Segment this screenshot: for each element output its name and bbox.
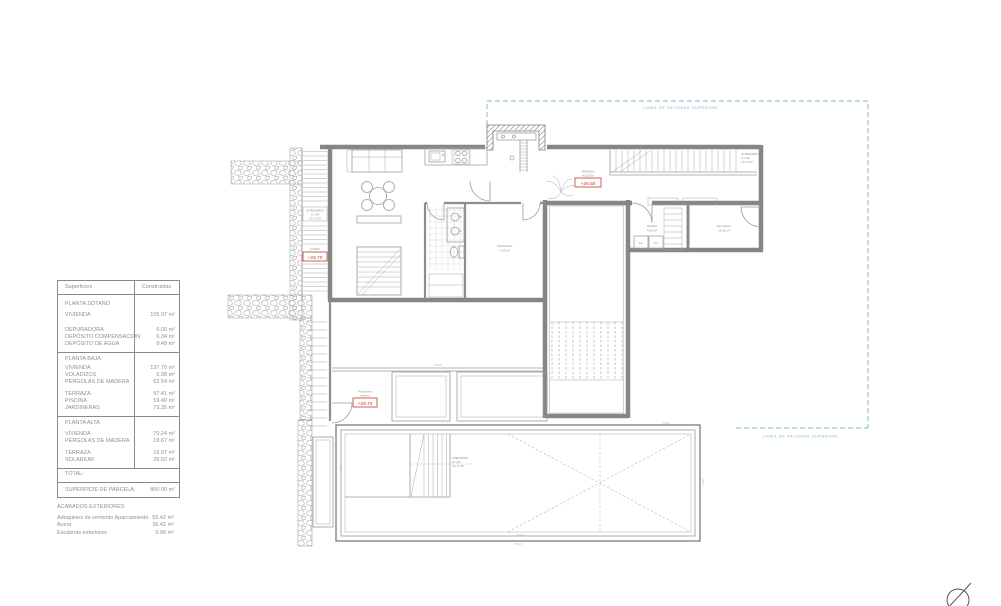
room-dormitorio: Dormitorio (717, 224, 731, 228)
deck-void-cross (508, 434, 691, 532)
kitchen-counter (425, 148, 487, 165)
level-acera: +29.70 (308, 255, 323, 261)
room-vestidor: Vestidor (647, 224, 658, 228)
dimension-text: 25.10 (514, 542, 522, 546)
hall-room: Distribuidor 8.10 m² (497, 244, 512, 253)
dimension-text: 5.40 (701, 479, 705, 485)
hall-caption: ACCESO (582, 174, 595, 178)
interior-stair-down (357, 247, 401, 295)
bedroom-wing: Vestidor 4.20 m² Arm Arm Dormitorio 13.1… (634, 198, 731, 250)
acera-caption: ACERA (310, 247, 320, 251)
dimension-text: 3.20 (339, 465, 343, 471)
planter-2 (457, 372, 547, 421)
stair-note-line: 18 PELDAÑOS (306, 208, 324, 213)
dimension-text: 24.30 (516, 533, 524, 537)
stair-note-line: CH: 0.175 (741, 160, 753, 164)
stair-band-east: 15 PELDAÑOS H: 0.28 CH: 0.175 (610, 150, 759, 175)
terrace-caption: exterior (360, 394, 369, 398)
dimension-text: 15.38 (434, 363, 442, 367)
level-terraza: +29.70 (358, 401, 373, 407)
pool-inner-edge (550, 206, 624, 413)
room-dormitorio-area: 13.19 m² (718, 229, 730, 233)
plant-sketch (546, 176, 576, 199)
stair-note-line: H: 0.30 (452, 460, 461, 464)
dimension-text: 9.05 (663, 421, 669, 425)
stair-note-line: CH: 0.175 (309, 217, 321, 221)
entrance-vestibule (487, 125, 545, 172)
stair-note-line: CH: 0.175 (452, 464, 464, 468)
closet-label: Arm (639, 242, 643, 245)
stair-note-line: H: 0.30 (311, 213, 320, 217)
terrace: 15.38 Pavimento exterior +29.70 (353, 363, 547, 421)
hall-level-marker: TERRAZA ACCESO +26.50 (546, 170, 601, 199)
sink (451, 213, 459, 221)
architect-logo (947, 583, 971, 606)
room-hall: Distribuidor (497, 244, 512, 248)
level-hall: +26.50 (581, 181, 596, 187)
setback-label-top: LINEA DE FACHADA SUPERIOR (643, 105, 718, 110)
living-room-furniture (347, 150, 402, 295)
pool (550, 322, 624, 380)
deck-stairs: 9 PELDAÑOS H: 0.30 CH: 0.175 (345, 434, 473, 497)
floor-plan: LINEA DE FACHADA SUPERIOR LINEA DE FACHA… (0, 0, 1001, 606)
setback-label-bottom: LINEA DE FACHADA SUPERIOR (763, 434, 838, 439)
stair-note-line: 15 PELDAÑOS (741, 151, 759, 156)
room-hall-area: 8.10 m² (500, 249, 510, 253)
console (357, 216, 401, 223)
planter-1 (392, 372, 450, 421)
stair-note-line: H: 0.28 (741, 156, 750, 160)
bathroom (428, 206, 464, 297)
terrain-rock-hatch (228, 148, 312, 546)
solarium-deck: 9 PELDAÑOS H: 0.30 CH: 0.175 9.05 24.30 … (336, 421, 705, 546)
stair-note-line: 9 PELDAÑOS (452, 455, 469, 460)
drawing-sheet: Superficies Construidas PLANTA SÓTANO VI… (0, 0, 1001, 606)
room-vestidor-area: 4.20 m² (647, 229, 657, 233)
closet-label: Arm (654, 242, 658, 245)
building-walls (320, 145, 763, 421)
